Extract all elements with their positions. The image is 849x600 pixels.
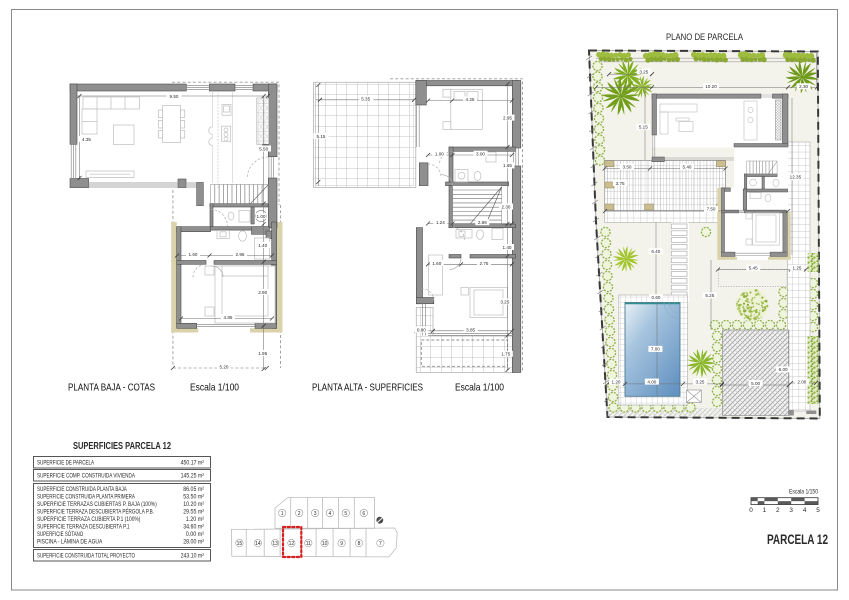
svg-text:Escala 1/100: Escala 1/100 — [190, 383, 239, 394]
svg-text:4.35: 4.35 — [82, 137, 91, 142]
svg-text:15: 15 — [237, 541, 243, 547]
svg-text:145.25 m²: 145.25 m² — [181, 473, 204, 480]
svg-text:3.25: 3.25 — [696, 379, 705, 384]
svg-text:10.20 m²: 10.20 m² — [183, 501, 204, 508]
svg-text:3: 3 — [314, 511, 317, 517]
svg-text:4.25: 4.25 — [466, 97, 475, 102]
svg-text:8: 8 — [358, 541, 361, 547]
svg-text:6.40: 6.40 — [651, 249, 660, 254]
svg-text:86.05 m²: 86.05 m² — [183, 486, 204, 493]
svg-text:5.15: 5.15 — [639, 125, 648, 130]
svg-text:1.65: 1.65 — [503, 163, 512, 168]
svg-text:PLANTA BAJA - COTAS: PLANTA BAJA - COTAS — [68, 383, 155, 394]
svg-text:Escala 1/150: Escala 1/150 — [789, 489, 818, 496]
svg-text:SUPERFICIE CONSTRUIDA PLANTA P: SUPERFICIE CONSTRUIDA PLANTA PRIMERA — [37, 493, 135, 500]
svg-text:PLANTA ALTA - SUPERFICIES: PLANTA ALTA - SUPERFICIES — [312, 383, 423, 394]
svg-text:6: 6 — [362, 511, 365, 517]
svg-text:0: 0 — [749, 507, 753, 514]
svg-text:1.95: 1.95 — [258, 351, 267, 356]
svg-text:3.75: 3.75 — [616, 181, 625, 186]
svg-text:3.25: 3.25 — [500, 299, 509, 304]
svg-text:14: 14 — [255, 541, 261, 547]
svg-text:1.20 m²: 1.20 m² — [186, 516, 204, 523]
svg-text:3.00: 3.00 — [476, 152, 485, 157]
svg-text:SUPERFICIE TERRAZAS CUBIERTAS: SUPERFICIE TERRAZAS CUBIERTAS P. BAJA (1… — [37, 501, 157, 508]
svg-text:1.40: 1.40 — [258, 243, 267, 248]
svg-text:10: 10 — [322, 541, 328, 547]
svg-text:2.30: 2.30 — [799, 84, 808, 89]
svg-text:1.00: 1.00 — [435, 152, 444, 157]
svg-text:9.50: 9.50 — [170, 94, 179, 99]
svg-text:SUPERFICIE COMP. CONSTRUIDA VI: SUPERFICIE COMP. CONSTRUIDA VIVIENDA — [37, 473, 135, 480]
svg-text:2.90: 2.90 — [258, 290, 267, 295]
svg-text:0.60: 0.60 — [652, 295, 661, 300]
svg-text:SUPERFICIE TERRAZA CUBIERTA P.: SUPERFICIE TERRAZA CUBIERTA P.1 (100%) — [37, 516, 140, 523]
svg-text:SUPERFICIE TERRAZA DESCUBIERTA: SUPERFICIE TERRAZA DESCUBIERTA P.1 — [37, 523, 130, 530]
svg-text:3.85: 3.85 — [466, 327, 475, 332]
svg-text:5.00: 5.00 — [751, 381, 760, 386]
svg-text:6.00: 6.00 — [779, 367, 788, 372]
svg-text:2.86: 2.86 — [478, 220, 487, 225]
svg-text:12: 12 — [289, 541, 295, 547]
svg-text:2.75: 2.75 — [480, 261, 489, 266]
svg-text:2.30: 2.30 — [502, 204, 511, 209]
svg-text:Escala 1/100: Escala 1/100 — [455, 383, 504, 394]
svg-text:7: 7 — [379, 541, 382, 547]
svg-text:1.60: 1.60 — [189, 252, 198, 257]
svg-text:5.45: 5.45 — [749, 266, 758, 271]
svg-text:SUPERFICIES PARCELA 12: SUPERFICIES PARCELA 12 — [73, 440, 171, 452]
svg-text:3.25: 3.25 — [639, 69, 648, 74]
svg-text:5: 5 — [344, 511, 347, 517]
svg-text:5.15: 5.15 — [317, 134, 326, 139]
svg-text:SUPERFICIE CONSTRUIDA PLANTA B: SUPERFICIE CONSTRUIDA PLANTA BAJA — [37, 486, 127, 493]
svg-text:1.20: 1.20 — [612, 379, 621, 384]
svg-text:2: 2 — [298, 511, 301, 517]
svg-text:12.35: 12.35 — [790, 175, 802, 180]
svg-text:13: 13 — [272, 541, 278, 547]
svg-text:1.40: 1.40 — [503, 245, 512, 250]
svg-text:PARCELA 12: PARCELA 12 — [767, 532, 828, 547]
svg-text:2.95: 2.95 — [236, 252, 245, 257]
svg-text:1.75: 1.75 — [501, 352, 510, 357]
svg-text:34.60 m²: 34.60 m² — [183, 523, 204, 530]
svg-text:PISCINA - LÁMINA DE AGUA: PISCINA - LÁMINA DE AGUA — [37, 536, 103, 545]
svg-text:1.25: 1.25 — [793, 266, 802, 271]
svg-text:2.00: 2.00 — [797, 379, 806, 384]
svg-text:5.35: 5.35 — [361, 96, 370, 101]
svg-text:5.25: 5.25 — [705, 293, 714, 298]
svg-text:29.55 m²: 29.55 m² — [183, 508, 204, 515]
svg-text:1.24: 1.24 — [436, 220, 445, 225]
svg-text:0.80: 0.80 — [417, 327, 426, 332]
svg-text:PLANO DE PARCELA: PLANO DE PARCELA — [666, 32, 743, 43]
svg-text:243.10 m²: 243.10 m² — [181, 553, 204, 560]
svg-text:3.50: 3.50 — [623, 165, 632, 170]
svg-text:5.20: 5.20 — [220, 364, 229, 369]
svg-text:5.50: 5.50 — [259, 146, 268, 151]
svg-text:SUPERFICIE CONSTRUIDA TOTAL PR: SUPERFICIE CONSTRUIDA TOTAL PROYECTO — [37, 553, 135, 560]
svg-text:7.00: 7.00 — [651, 347, 660, 352]
svg-text:SUPERFICIE TERRAZA DESCUBIERTA: SUPERFICIE TERRAZA DESCUBIERTA PÉRGOLA P… — [37, 506, 154, 515]
svg-text:2.95: 2.95 — [503, 115, 512, 120]
svg-text:10.20: 10.20 — [705, 84, 717, 89]
svg-text:4: 4 — [329, 511, 332, 517]
svg-text:9: 9 — [340, 541, 343, 547]
svg-text:2: 2 — [776, 507, 780, 514]
svg-text:3: 3 — [789, 507, 793, 514]
svg-text:1.60: 1.60 — [432, 261, 441, 266]
svg-text:7.50: 7.50 — [707, 207, 716, 212]
svg-text:1.00: 1.00 — [257, 214, 266, 219]
svg-text:SUPERFICIE DE PARCELA: SUPERFICIE DE PARCELA — [37, 460, 95, 467]
svg-text:SUPERFICIE SÓTANO: SUPERFICIE SÓTANO — [37, 529, 83, 538]
svg-text:28.00 m²: 28.00 m² — [183, 538, 204, 545]
svg-text:53.50 m²: 53.50 m² — [183, 493, 204, 500]
svg-text:5: 5 — [816, 507, 820, 514]
svg-text:4: 4 — [803, 507, 807, 514]
svg-text:4.00: 4.00 — [647, 379, 656, 384]
svg-text:5.40: 5.40 — [683, 165, 692, 170]
svg-text:4.85: 4.85 — [224, 315, 233, 320]
svg-text:450.17 m²: 450.17 m² — [181, 460, 204, 467]
svg-text:1: 1 — [281, 511, 284, 517]
svg-text:0.00 m²: 0.00 m² — [186, 531, 204, 538]
svg-text:11: 11 — [306, 541, 311, 547]
svg-text:1: 1 — [763, 507, 767, 514]
